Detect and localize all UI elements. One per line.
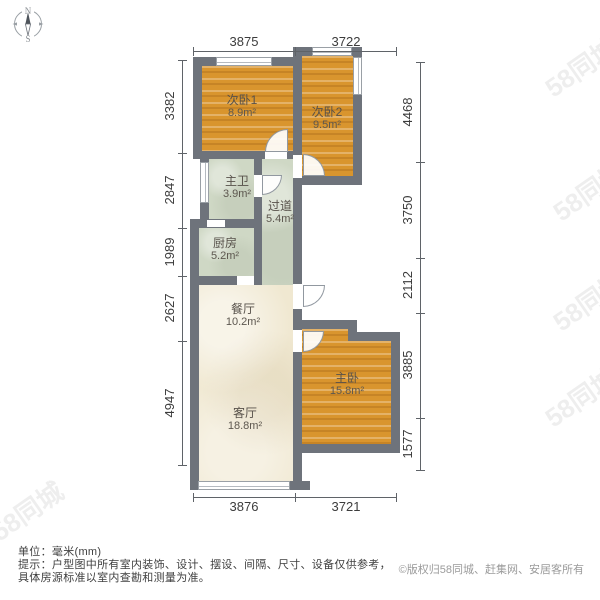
wall — [193, 57, 202, 159]
window-symbol — [198, 481, 290, 490]
footer-tip-line2: 具体房源标准以室内查勘和测量为准。 — [18, 572, 210, 585]
dimension-label: 2847 — [163, 160, 177, 220]
dimension-tick — [193, 493, 194, 502]
room-label-kitchen: 厨房 5.2m² — [193, 237, 257, 263]
dimension-tick — [178, 228, 187, 229]
dimension-tick — [178, 153, 187, 154]
dimension-tick — [416, 418, 425, 419]
room-area: 18.8m² — [213, 420, 277, 433]
dimension-tick — [178, 60, 187, 61]
footer-tip-line1: 提示：户型图中所有室内装饰、设计、摆设、间隔、尺寸、设备仅供参考， — [18, 559, 391, 572]
dimension-label: 2112 — [401, 255, 415, 315]
doorway-gap — [207, 220, 225, 227]
dimension-tick — [416, 258, 425, 259]
wall — [293, 444, 400, 453]
room-name: 次卧2 — [295, 106, 359, 119]
room-area: 5.4m² — [248, 213, 312, 226]
dimension-tick — [416, 470, 425, 471]
dimension-tick — [295, 47, 296, 56]
room-name: 过道 — [248, 200, 312, 213]
watermark-text: 58同城 — [545, 262, 600, 339]
doorway-gap — [265, 151, 287, 159]
dimension-label: 3876 — [224, 500, 264, 514]
room-name: 厨房 — [193, 237, 257, 250]
room-label-master: 主卧 15.8m² — [315, 372, 379, 398]
doorway-gap — [293, 155, 302, 178]
dimension-tick — [193, 47, 194, 56]
dimension-label: 4947 — [163, 373, 177, 433]
dimension-tick — [396, 47, 397, 56]
room-label-bath: 主卫 3.9m² — [205, 175, 269, 201]
dimension-tick — [178, 276, 187, 277]
room-area: 10.2m² — [211, 316, 275, 329]
room-label-living: 客厅 18.8m² — [213, 407, 277, 433]
floorplan-page: N S — [0, 0, 600, 600]
doorway-gap — [293, 330, 302, 352]
room-label-bed2: 次卧2 9.5m² — [295, 106, 359, 132]
dimension-line-left — [182, 60, 183, 465]
dimension-label: 3382 — [163, 76, 177, 136]
dimension-tick — [178, 341, 187, 342]
door-arc-entry — [303, 285, 325, 307]
window-symbol — [353, 57, 362, 95]
room-label-bed1: 次卧1 8.9m² — [210, 94, 274, 120]
dimension-line-right — [420, 62, 421, 470]
footer-unit-line: 单位：毫米(mm) — [18, 546, 101, 559]
dimension-label: 1989 — [163, 222, 177, 282]
wall — [190, 228, 199, 490]
dimension-label: 2627 — [163, 278, 177, 338]
room-name: 次卧1 — [210, 94, 274, 107]
dimension-label: 3722 — [326, 35, 366, 49]
compass-icon: N S — [8, 4, 48, 49]
dimension-label: 4468 — [401, 82, 415, 142]
watermark-text: 58同城 — [537, 28, 600, 105]
dimension-label: 3721 — [326, 500, 366, 514]
dimension-label: 3750 — [401, 180, 415, 240]
window-symbol — [216, 57, 272, 66]
room-label-hall: 过道 5.4m² — [248, 200, 312, 226]
watermark-text: 58同城 — [0, 472, 70, 549]
dimension-tick — [178, 465, 187, 466]
dimension-tick — [416, 62, 425, 63]
room-area: 9.5m² — [295, 119, 359, 132]
dimension-tick — [295, 493, 296, 502]
copyright-text: ©版权归58同城、赶集网、安居客所有 — [399, 561, 584, 577]
watermark-text: 58同城 — [537, 358, 600, 435]
dimension-label: 1577 — [401, 414, 415, 474]
wall — [293, 176, 362, 185]
dimension-tick — [416, 313, 425, 314]
dimension-tick — [396, 493, 397, 502]
room-name: 主卫 — [205, 175, 269, 188]
room-name: 主卧 — [315, 372, 379, 385]
room-name: 餐厅 — [211, 303, 275, 316]
dimension-label: 3875 — [224, 35, 264, 49]
watermark-text: 58同城 — [545, 152, 600, 229]
doorway-gap — [293, 284, 302, 309]
room-area: 5.2m² — [193, 250, 257, 263]
room-name: 客厅 — [213, 407, 277, 420]
room-area: 8.9m² — [210, 107, 274, 120]
room-label-dining: 餐厅 10.2m² — [211, 303, 275, 329]
dimension-tick — [416, 162, 425, 163]
dimension-label: 3885 — [401, 335, 415, 395]
wall — [391, 332, 400, 453]
wall — [190, 276, 237, 285]
room-area: 15.8m² — [315, 385, 379, 398]
